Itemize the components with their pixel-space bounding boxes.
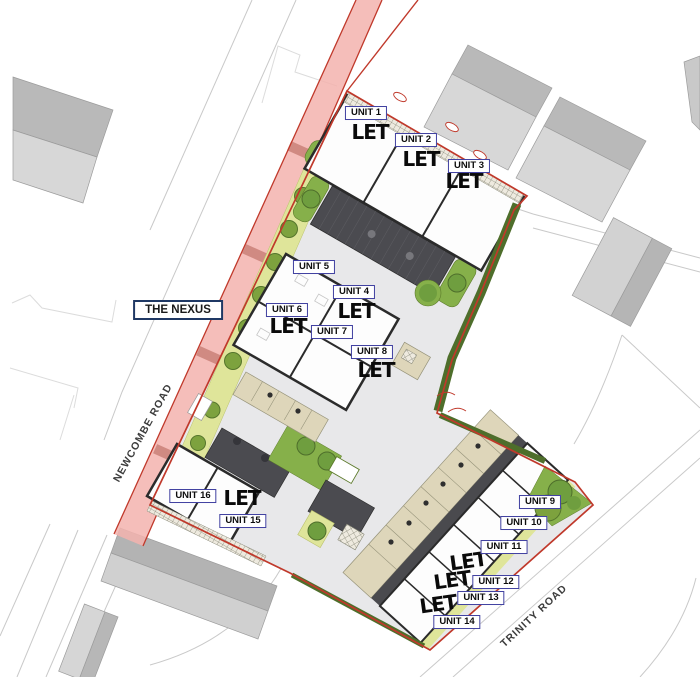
unit-13-label: UNIT 13 — [457, 591, 504, 605]
unit-2-label: UNIT 2 — [395, 133, 437, 147]
unit-5-label: UNIT 5 — [293, 260, 335, 274]
unit-16-label: UNIT 16 — [169, 489, 216, 503]
unit-8-let-status: LET — [357, 358, 394, 382]
unit-4-let-status: LET — [337, 299, 374, 323]
unit-3-label: UNIT 3 — [448, 159, 490, 173]
unit-4-label: UNIT 4 — [333, 285, 375, 299]
unit-15-label: UNIT 15 — [219, 514, 266, 528]
site-name-label: THE NEXUS — [133, 300, 223, 320]
unit-7-label: UNIT 7 — [311, 325, 353, 339]
unit-12-label: UNIT 12 — [472, 575, 519, 589]
unit-2-let-status: LET — [402, 147, 439, 171]
unit-6-label: UNIT 6 — [266, 303, 308, 317]
unit-1-let-status: LET — [351, 120, 388, 144]
site-plan-canvas: THE NEXUS NEWCOMBE ROAD TRINITY ROAD UNI… — [0, 0, 700, 677]
unit-11-label: UNIT 11 — [481, 540, 528, 554]
unit-6-let-status: LET — [269, 314, 306, 338]
unit-8-label: UNIT 8 — [351, 345, 393, 359]
unit-10-label: UNIT 10 — [500, 516, 547, 530]
unit-15-let-status: LET — [223, 486, 260, 510]
unit-9-label: UNIT 9 — [519, 495, 561, 509]
unit-14-label: UNIT 14 — [433, 615, 480, 629]
unit-1-label: UNIT 1 — [345, 106, 387, 120]
